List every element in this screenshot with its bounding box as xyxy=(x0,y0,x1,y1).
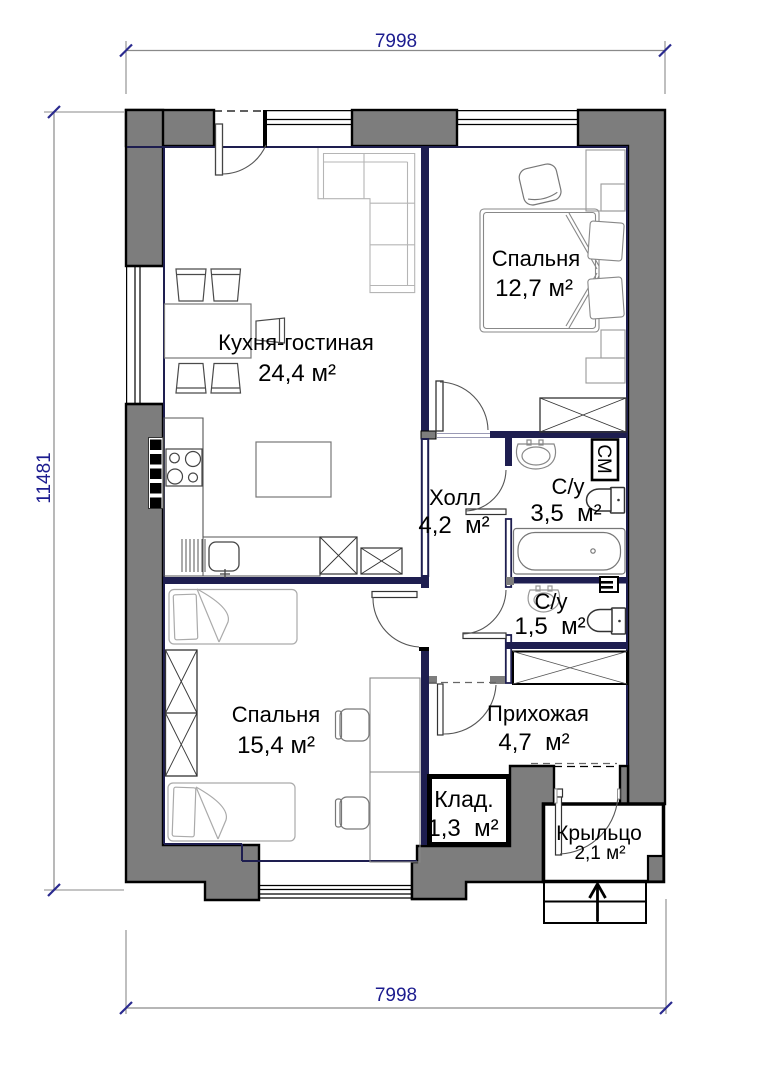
svg-text:Холл: Холл xyxy=(429,485,481,510)
svg-text:С/у: С/у xyxy=(535,589,568,614)
svg-text:Кухня-гостиная: Кухня-гостиная xyxy=(218,330,374,355)
svg-text:1,5 м²: 1,5 м² xyxy=(514,613,585,640)
svg-text:Клад.: Клад. xyxy=(434,786,493,812)
svg-text:7998: 7998 xyxy=(375,985,417,1006)
svg-text:3,5 м²: 3,5 м² xyxy=(530,500,601,527)
svg-text:12,7 м²: 12,7 м² xyxy=(495,275,573,302)
svg-text:4,7 м²: 4,7 м² xyxy=(498,729,569,756)
svg-text:4,2 м²: 4,2 м² xyxy=(418,512,489,539)
svg-text:СМ: СМ xyxy=(593,444,614,473)
svg-text:11481: 11481 xyxy=(34,452,55,503)
svg-text:1,3 м²: 1,3 м² xyxy=(427,815,498,842)
svg-text:Прихожая: Прихожая xyxy=(487,701,589,726)
svg-text:2,1 м²: 2,1 м² xyxy=(574,843,625,864)
svg-text:15,4 м²: 15,4 м² xyxy=(237,732,315,759)
svg-text:Спальня: Спальня xyxy=(492,246,580,271)
svg-text:7998: 7998 xyxy=(375,31,417,52)
svg-text:Спальня: Спальня xyxy=(232,702,320,727)
svg-text:Крыльцо: Крыльцо xyxy=(556,822,642,845)
svg-text:С/у: С/у xyxy=(552,474,585,499)
svg-text:24,4 м²: 24,4 м² xyxy=(258,360,336,387)
